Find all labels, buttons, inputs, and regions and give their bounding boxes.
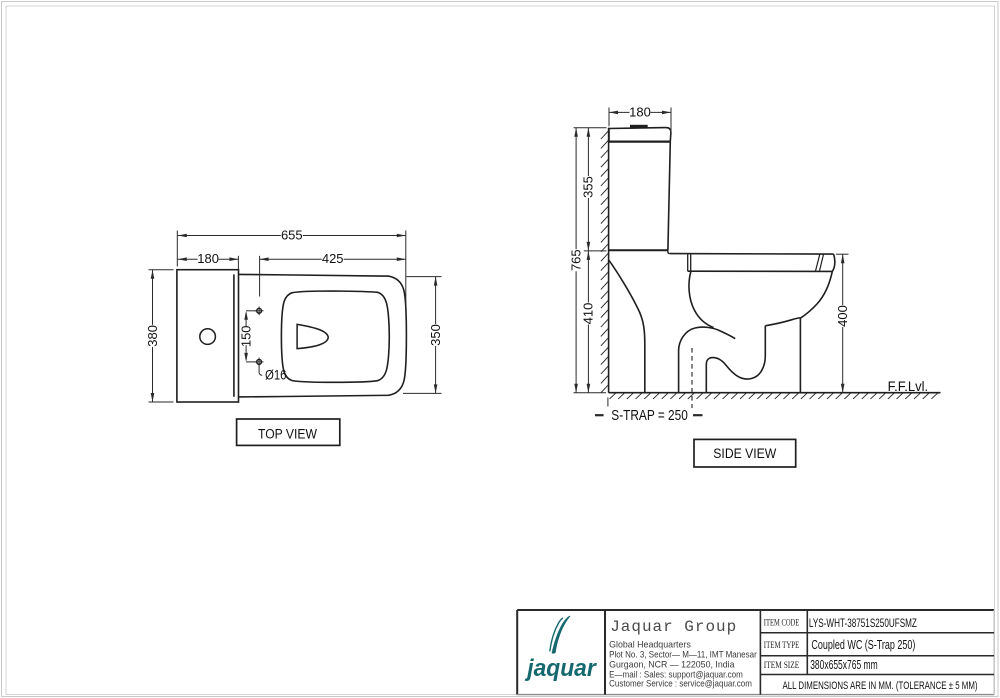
svg-text:jaquar: jaquar: [524, 655, 597, 682]
svg-text:380: 380: [145, 325, 160, 347]
svg-text:Coupled WC (S-Trap 250): Coupled WC (S-Trap 250): [811, 637, 915, 652]
svg-text:400: 400: [835, 305, 850, 327]
svg-text:ITEM CODE: ITEM CODE: [764, 618, 800, 629]
svg-text:ALL DIMENSIONS ARE IN MM. (TOL: ALL DIMENSIONS ARE IN MM. (TOLERANCE ± 5…: [783, 680, 978, 692]
svg-text:180: 180: [629, 104, 651, 119]
svg-text:SIDE VIEW: SIDE VIEW: [713, 446, 776, 461]
svg-text:380x655x765 mm: 380x655x765 mm: [810, 658, 878, 672]
svg-text:355: 355: [581, 176, 596, 198]
svg-text:410: 410: [581, 303, 596, 325]
svg-text:TOP VIEW: TOP VIEW: [258, 427, 317, 442]
svg-text:ITEM SIZE: ITEM SIZE: [764, 660, 800, 671]
svg-text:425: 425: [322, 251, 344, 266]
svg-text:765: 765: [568, 249, 583, 271]
svg-text:350: 350: [428, 324, 443, 346]
svg-text:LYS-WHT-38751S250UFSMZ: LYS-WHT-38751S250UFSMZ: [809, 616, 917, 630]
svg-text:S-TRAP = 250: S-TRAP = 250: [611, 408, 688, 424]
svg-text:150: 150: [238, 325, 253, 347]
svg-text:655: 655: [281, 227, 303, 242]
svg-text:180: 180: [197, 251, 219, 266]
svg-text:ITEM TYPE: ITEM TYPE: [764, 640, 800, 651]
svg-text:Jaquar Group: Jaquar Group: [610, 618, 737, 636]
svg-text:F.F.Lvl.: F.F.Lvl.: [888, 378, 929, 394]
svg-text:Customer Service : service@jaq: Customer Service : service@jaquar.com: [609, 677, 752, 688]
svg-text:Ø16: Ø16: [265, 368, 287, 383]
